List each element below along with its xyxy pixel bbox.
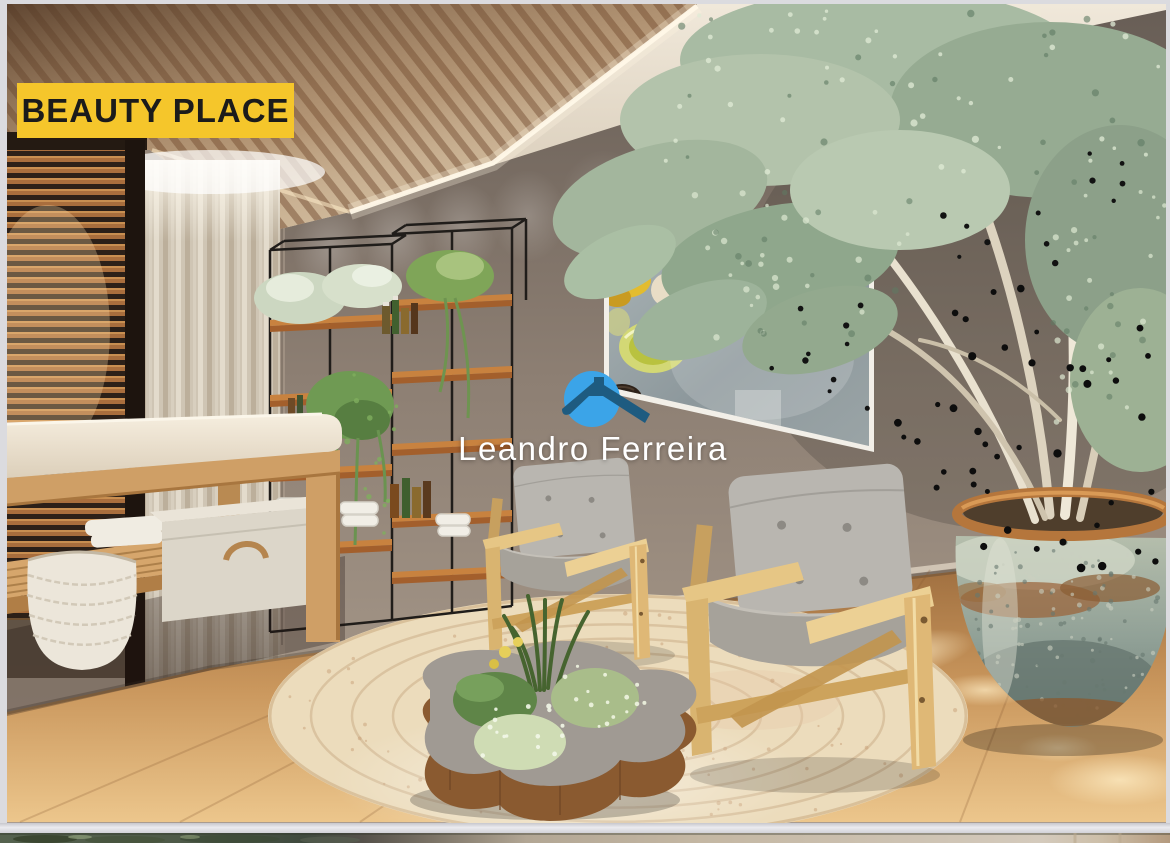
woven-basket bbox=[27, 551, 137, 670]
gallery-gap bbox=[0, 823, 1170, 833]
house-roof-logo-icon bbox=[558, 368, 652, 430]
photo-badge-label: BEAUTY PLACE bbox=[21, 94, 289, 127]
listing-page: BEAUTY PLACE Leandro Ferreira bbox=[0, 0, 1170, 843]
watermark: Leandro Ferreira bbox=[413, 368, 773, 468]
photo-badge: BEAUTY PLACE bbox=[17, 83, 294, 138]
next-photo-strip[interactable] bbox=[0, 833, 1170, 843]
listing-photo[interactable]: BEAUTY PLACE Leandro Ferreira bbox=[7, 4, 1166, 823]
towel-stack bbox=[85, 515, 167, 549]
watermark-text: Leandro Ferreira bbox=[413, 430, 773, 468]
canvas-storage-box bbox=[150, 496, 330, 622]
